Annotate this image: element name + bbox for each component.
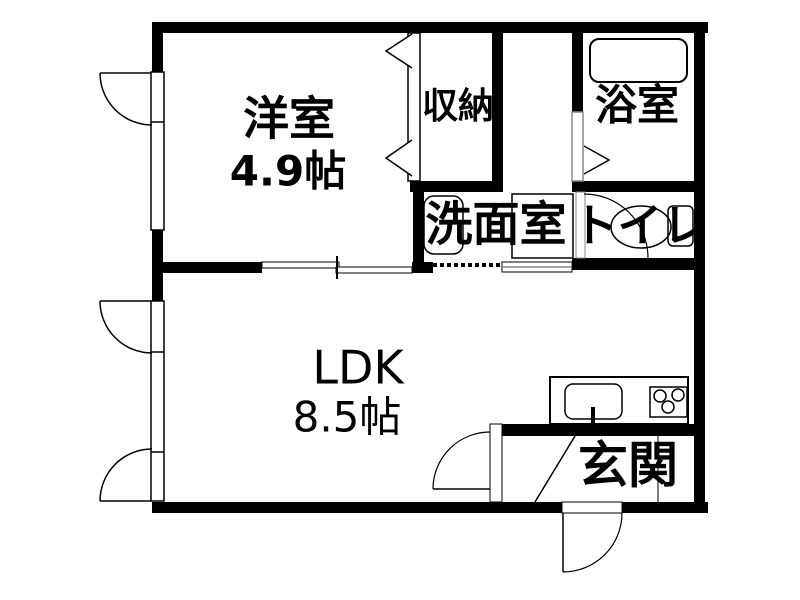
closet-bifold-door bbox=[386, 33, 420, 181]
floor-plan: 洋室 4.9帖 収納 浴室 洗面室 トイレ LDK 8.5帖 玄関 bbox=[0, 0, 800, 600]
entrance-step-diagonal bbox=[535, 436, 575, 502]
label-washroom: 洗面室 bbox=[426, 198, 567, 253]
wall-bottom-left bbox=[152, 502, 562, 513]
burner-2 bbox=[672, 389, 684, 401]
wall-top bbox=[152, 22, 708, 33]
label-ldk-size: 8.5帖 bbox=[293, 393, 402, 442]
wall-toilet-bottom bbox=[572, 258, 694, 270]
wall-entrance-top bbox=[490, 424, 694, 436]
closet-bifold-triangle-bottom bbox=[386, 140, 412, 176]
label-western-room: 洋室 bbox=[243, 92, 335, 146]
wall-right bbox=[694, 22, 705, 513]
wall-bath-bottom bbox=[572, 181, 694, 192]
kitchen-counter bbox=[550, 377, 688, 424]
front-door bbox=[562, 502, 622, 572]
wall-left-upper bbox=[152, 22, 163, 73]
window-ldk-swing-arc-top bbox=[100, 301, 152, 353]
burner-3 bbox=[662, 401, 674, 413]
entrance-inner-door bbox=[433, 424, 502, 502]
washroom-openings bbox=[433, 262, 572, 272]
floor-plan-svg: 洋室 4.9帖 収納 浴室 洗面室 トイレ LDK 8.5帖 玄関 bbox=[0, 0, 800, 600]
wall-mid-west bbox=[152, 262, 262, 273]
window-ldk bbox=[151, 301, 164, 501]
sliding-door-western-ldk bbox=[262, 256, 412, 279]
label-bath: 浴室 bbox=[595, 81, 679, 130]
label-western-room-size: 4.9帖 bbox=[230, 147, 346, 196]
bath-door-triangle bbox=[584, 146, 609, 174]
burner-1 bbox=[654, 390, 666, 402]
wall-washroom-left bbox=[413, 192, 424, 262]
wall-mid-east-stub bbox=[412, 262, 433, 273]
label-toilet: トイレ bbox=[572, 199, 707, 252]
window-western-swing-arc bbox=[100, 73, 152, 125]
closet-bifold-triangle-top bbox=[386, 34, 412, 68]
gas-stove-icon bbox=[650, 387, 687, 417]
entrance-inner-door-arc bbox=[433, 432, 490, 489]
window-western-room bbox=[151, 72, 164, 230]
label-ldk: LDK bbox=[312, 341, 405, 395]
window-ldk-swing-arc-bottom bbox=[100, 449, 152, 501]
wall-closet-bottom bbox=[410, 181, 503, 192]
wall-bath-left bbox=[572, 33, 583, 112]
wall-bottom-right bbox=[622, 502, 708, 513]
bathtub-icon bbox=[590, 39, 687, 82]
label-entrance: 玄関 bbox=[578, 437, 678, 495]
label-closet: 収納 bbox=[422, 86, 494, 127]
front-door-arc bbox=[563, 513, 622, 572]
